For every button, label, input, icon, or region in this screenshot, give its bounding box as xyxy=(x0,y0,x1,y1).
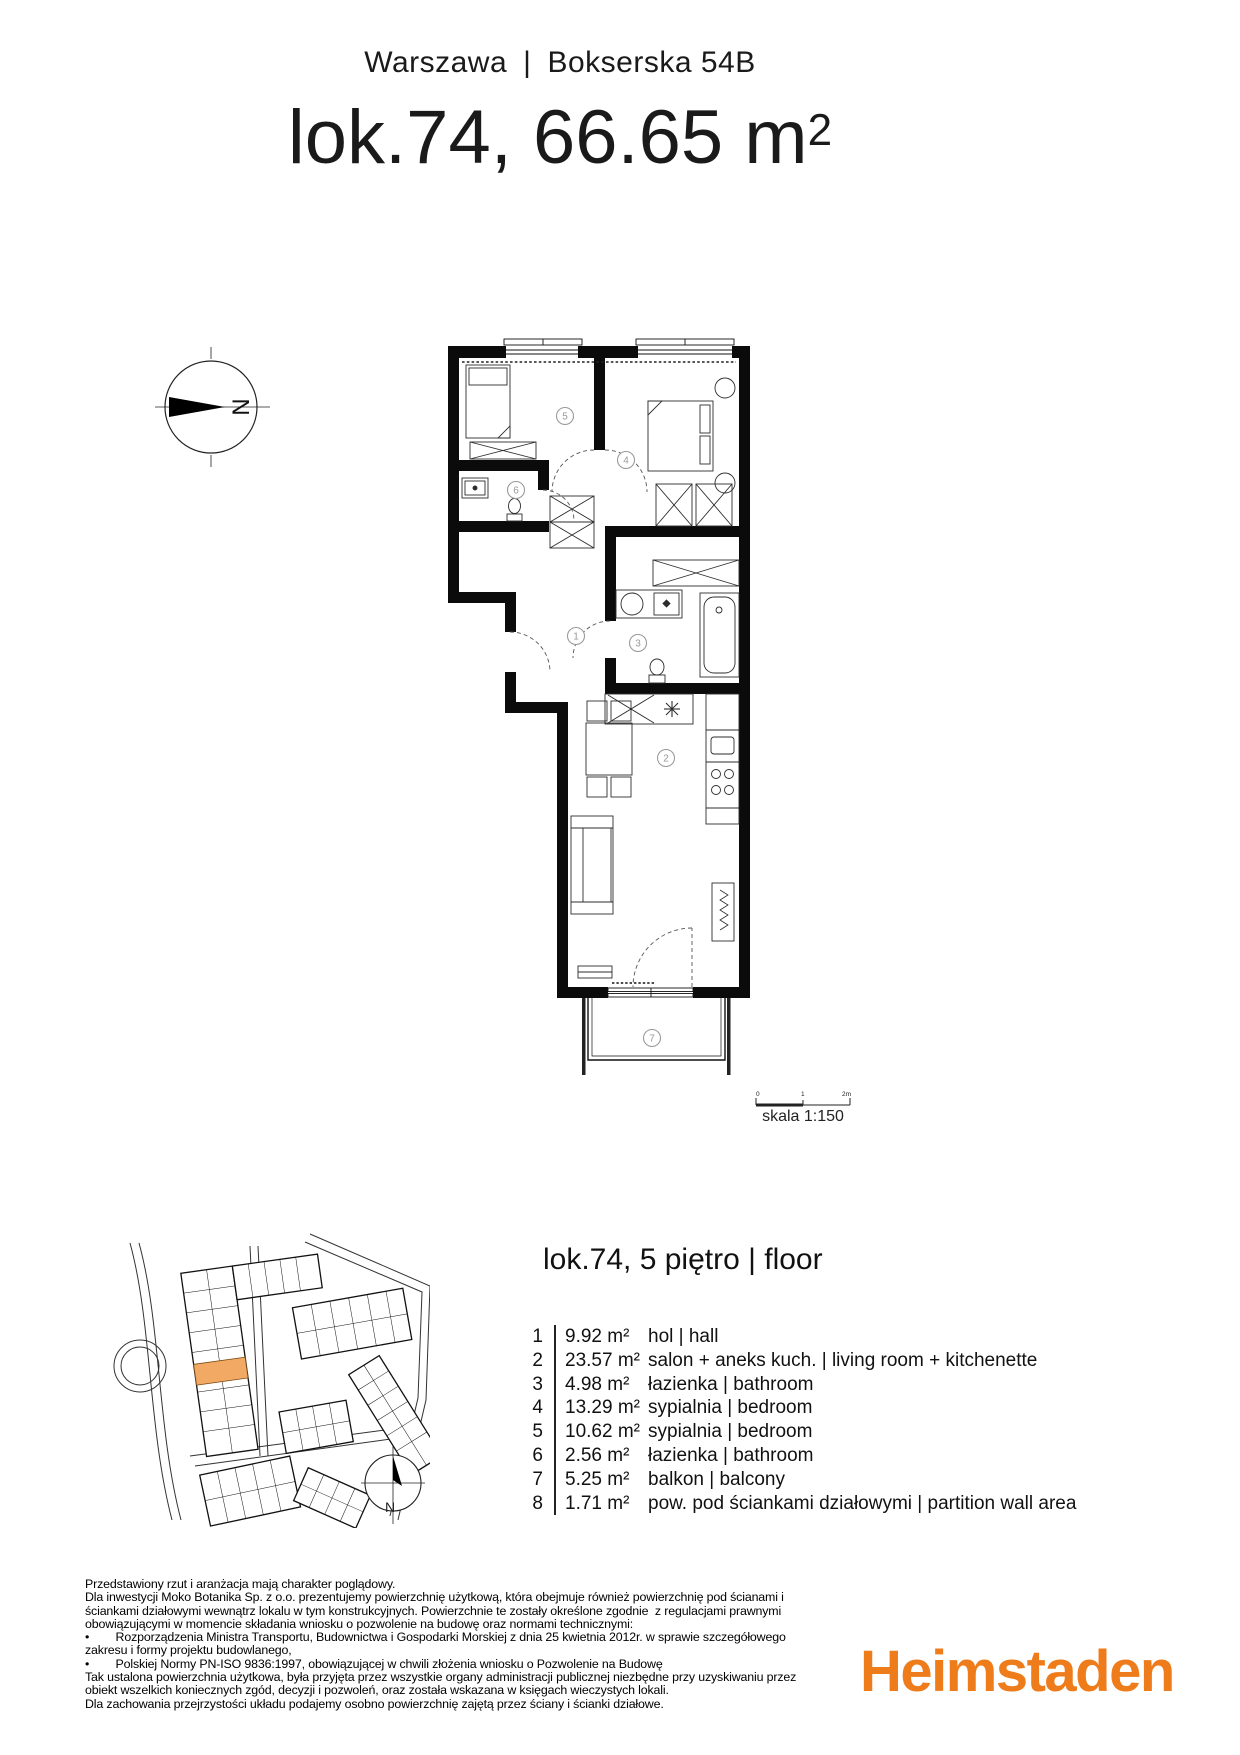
room-area: 1.71 m² xyxy=(556,1492,648,1516)
room-number: 7 xyxy=(470,1468,554,1492)
separator: | xyxy=(523,46,531,80)
room-legend: 1 9.92 m² hol | hall 2 23.57 m² salon + … xyxy=(470,1325,1076,1515)
location-line: Warszawa|Bokserska 54B xyxy=(0,46,1120,80)
address-label: Bokserska 54B xyxy=(547,46,755,79)
page-title: lok.74, 66.65 m2 xyxy=(0,94,1120,181)
disclaimer-line: Dla zachowania przejrzystości układu pod… xyxy=(85,1698,875,1711)
compass-n-letter: N xyxy=(227,398,254,415)
room-area: 5.25 m² xyxy=(556,1468,648,1492)
room-badge-2: 2 xyxy=(658,750,675,767)
city-label: Warszawa xyxy=(364,46,507,79)
room-area: 9.92 m² xyxy=(556,1325,648,1349)
legend-row: 6 2.56 m² łazienka | bathroom xyxy=(470,1444,1076,1468)
room-area: 23.57 m² xyxy=(556,1349,648,1373)
svg-text:3: 3 xyxy=(635,639,641,650)
floorplan-page: Warszawa|Bokserska 54B lok.74, 66.65 m2 … xyxy=(0,0,1240,1755)
legend-row: 4 13.29 m² sypialnia | bedroom xyxy=(470,1396,1076,1420)
room-number: 1 xyxy=(470,1325,554,1349)
svg-text:4: 4 xyxy=(623,456,629,467)
unit-section-title: lok.74, 5 piętro | floor xyxy=(543,1243,823,1277)
disclaimer-line: Tak ustalona powierzchnia użytkowa, była… xyxy=(85,1671,875,1684)
legend-row: 1 9.92 m² hol | hall xyxy=(470,1325,1076,1349)
disclaimer-text: Przedstawiony rzut i aranżacja mają char… xyxy=(85,1578,875,1711)
balcony-door-window xyxy=(608,983,693,997)
svg-text:7: 7 xyxy=(649,1034,655,1045)
disclaimer-line: obowiązującymi w momencie składania wnio… xyxy=(85,1618,875,1631)
room-number: 4 xyxy=(470,1396,554,1420)
room-area: 2.56 m² xyxy=(556,1444,648,1468)
room-number: 3 xyxy=(470,1373,554,1397)
room-name: sypialnia | bedroom xyxy=(648,1420,812,1444)
room-number: 8 xyxy=(470,1492,554,1516)
header: Warszawa|Bokserska 54B lok.74, 66.65 m2 xyxy=(0,46,1120,181)
unit-title-text: lok.74, 66.65 m xyxy=(288,95,808,180)
disclaimer-line: • Rozporządzenia Ministra Transportu, Bu… xyxy=(85,1631,875,1644)
room-number: 5 xyxy=(470,1420,554,1444)
room-badge-5: 5 xyxy=(557,408,574,425)
disclaimer-line: ściankami działowymi wewnątrz lokalu w t… xyxy=(85,1605,875,1618)
legend-row: 8 1.71 m² pow. pod ściankami działowymi … xyxy=(470,1492,1076,1516)
floor-plan: 1 2 3 4 5 6 7 xyxy=(448,338,750,1075)
disclaimer-line: • Polskiej Normy PN-ISO 9836:1997, obowi… xyxy=(85,1658,875,1671)
room-name: balkon | balcony xyxy=(648,1468,785,1492)
room-area: 13.29 m² xyxy=(556,1396,648,1420)
compass-n-letter: N xyxy=(385,1499,395,1515)
disclaimer-line: Przedstawiony rzut i aranżacja mają char… xyxy=(85,1578,875,1591)
legend-row: 3 4.98 m² łazienka | bathroom xyxy=(470,1373,1076,1397)
walls xyxy=(448,346,750,998)
legend-row: 5 10.62 m² sypialnia | bedroom xyxy=(470,1420,1076,1444)
heimstaden-logo: Heimstaden xyxy=(860,1638,1174,1705)
legend-row: 7 5.25 m² balkon | balcony xyxy=(470,1468,1076,1492)
disclaimer-line: Dla inwestycji Moko Botanika Sp. z o.o. … xyxy=(85,1591,875,1604)
room-badge-6: 6 xyxy=(508,482,525,499)
room-badge-4: 4 xyxy=(618,452,635,469)
room-numbers: 1 2 3 4 5 6 7 xyxy=(508,408,675,1047)
room-badge-3: 3 xyxy=(630,635,647,652)
furniture xyxy=(462,365,739,978)
svg-text:5: 5 xyxy=(562,412,568,423)
room-area: 4.98 m² xyxy=(556,1373,648,1397)
room-name: łazienka | bathroom xyxy=(648,1373,813,1397)
compass-top: N xyxy=(155,345,270,470)
room-name: sypialnia | bedroom xyxy=(648,1396,812,1420)
svg-text:1: 1 xyxy=(801,1091,805,1098)
room-name: hol | hall xyxy=(648,1325,718,1349)
room-name: salon + aneks kuch. | living room + kitc… xyxy=(648,1349,1037,1373)
room-badge-7: 7 xyxy=(644,1030,661,1047)
svg-text:6: 6 xyxy=(513,486,519,497)
disclaimer-line: obiekt wszelkich koniecznych zgód, decyz… xyxy=(85,1684,875,1697)
room-number: 6 xyxy=(470,1444,554,1468)
site-map: N xyxy=(100,1228,430,1528)
svg-text:0: 0 xyxy=(756,1091,760,1098)
legend-row: 2 23.57 m² salon + aneks kuch. | living … xyxy=(470,1349,1076,1373)
room-badge-1: 1 xyxy=(568,628,585,645)
room-area: 10.62 m² xyxy=(556,1420,648,1444)
compass-needle xyxy=(169,397,225,417)
room-number: 2 xyxy=(470,1349,554,1373)
unit-title-sup: 2 xyxy=(808,106,833,155)
scale-label: skala 1:150 xyxy=(748,1108,858,1126)
disclaimer-line: zakresu i formy projektu budowlanego, xyxy=(85,1644,875,1657)
svg-text:2: 2 xyxy=(663,754,669,765)
room-name: pow. pod ściankami działowymi | partitio… xyxy=(648,1492,1076,1516)
svg-text:2m: 2m xyxy=(842,1091,851,1098)
svg-text:1: 1 xyxy=(573,632,579,643)
room-name: łazienka | bathroom xyxy=(648,1444,813,1468)
